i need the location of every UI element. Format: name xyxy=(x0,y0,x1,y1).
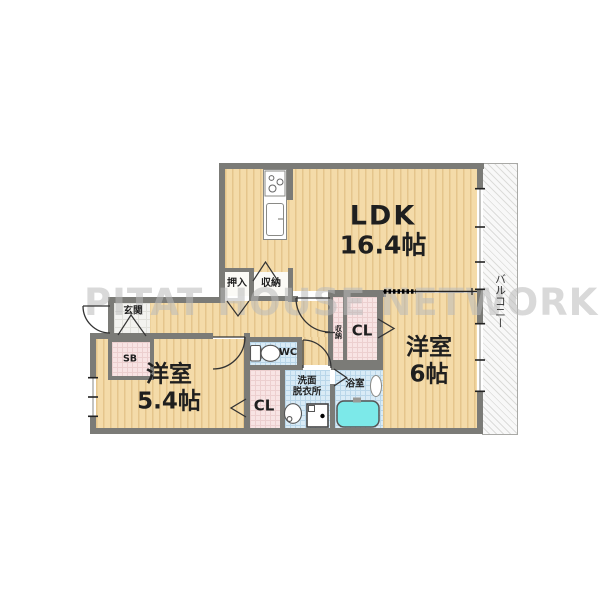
wall-washroom-top-left xyxy=(297,365,303,370)
entrance-label: 玄関 xyxy=(123,306,142,316)
western54-name-label: 洋室 xyxy=(146,364,192,387)
wall-room54-top xyxy=(90,333,213,339)
ldk-size-label: 16.4帖 xyxy=(340,233,427,258)
wall-room54-left xyxy=(90,333,96,434)
shoe-box-label: SB xyxy=(123,354,137,364)
wall-wc-top xyxy=(244,337,302,342)
wall-clblock-bottom xyxy=(328,360,383,366)
closet-room54-label: CL xyxy=(254,399,275,414)
western6-size-label: 6帖 xyxy=(409,364,448,387)
wall-kitchen-stub xyxy=(287,169,293,200)
wall-bath-divider xyxy=(330,384,335,428)
wall-wc-bottom xyxy=(244,365,302,370)
floor-plan: PITAT HOUSE NETWORK xyxy=(0,0,600,600)
ldk-name-label: LDK xyxy=(350,203,417,230)
storage-narrow-label: 収納 xyxy=(335,325,342,339)
closet-hall-label: CL xyxy=(352,324,373,339)
wall-top xyxy=(219,163,484,169)
washroom-label-line2: 脱衣所 xyxy=(293,387,322,397)
wall-cl54-right xyxy=(280,370,285,428)
oshiire-label: 押入 xyxy=(227,279,247,289)
bathroom-label: 浴室 xyxy=(345,379,364,389)
wall-wc-left xyxy=(244,333,250,428)
balcony-label: バルコニー xyxy=(495,274,506,329)
western54-size-label: 5.4帖 xyxy=(137,391,201,414)
toilet-label: WC xyxy=(279,348,297,358)
wall-oshiire-top xyxy=(219,268,253,272)
wall-bottom xyxy=(90,428,483,434)
kitchen-sink xyxy=(266,203,284,236)
watermark-text: PITAT HOUSE NETWORK xyxy=(84,281,598,324)
washroom-label-line1: 洗面 xyxy=(297,376,316,386)
western6-name-label: 洋室 xyxy=(406,337,452,360)
storage-ldk-label: 収納 xyxy=(261,279,281,289)
